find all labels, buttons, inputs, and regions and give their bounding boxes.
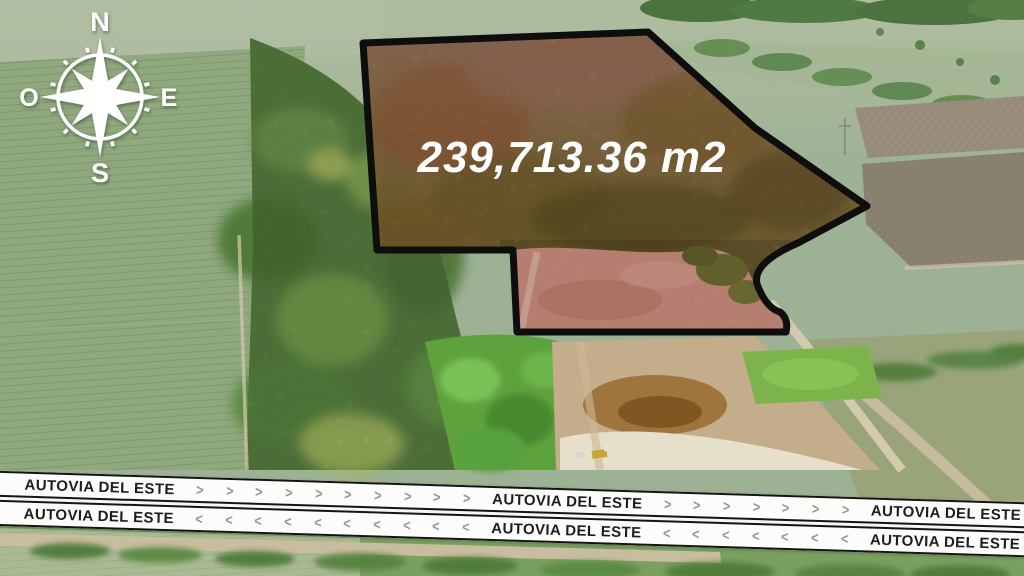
- direction-chevron: >: [841, 501, 849, 518]
- direction-chevron: <: [284, 513, 292, 530]
- road-name-label: AUTOVIA DEL ESTE: [870, 531, 1021, 553]
- compass-north-label: N: [90, 7, 110, 37]
- aerial-land-listing: 239,713.36 m2: [0, 0, 1024, 576]
- direction-chevron: <: [225, 511, 233, 528]
- direction-chevron: >: [752, 498, 760, 515]
- direction-chevron: <: [314, 514, 322, 531]
- direction-chevron: >: [196, 481, 204, 498]
- direction-chevron: >: [433, 489, 441, 506]
- direction-chevron: >: [693, 497, 701, 514]
- direction-chevron: <: [195, 510, 203, 527]
- direction-chevron: <: [662, 525, 670, 542]
- road-name-label: AUTOVIA DEL ESTE: [871, 502, 1022, 524]
- green-patch: [742, 346, 882, 404]
- compass-west-label: O: [19, 84, 38, 112]
- direction-chevron: <: [752, 527, 760, 544]
- direction-chevron: >: [723, 498, 731, 515]
- westbound-arrows: <<<<<<<: [641, 524, 870, 548]
- direction-chevron: >: [663, 496, 671, 513]
- direction-chevron: >: [225, 482, 233, 499]
- direction-chevron: <: [254, 512, 262, 529]
- eastbound-arrows: >>>>>>>: [642, 495, 871, 519]
- westbound-arrows: <<<<<<<<<<: [174, 510, 492, 537]
- direction-chevron: <: [811, 529, 819, 546]
- direction-chevron: >: [374, 487, 382, 504]
- compass-east-label: E: [161, 84, 178, 112]
- direction-chevron: <: [462, 519, 470, 536]
- road-name-label: AUTOVIA DEL ESTE: [492, 490, 643, 512]
- road-name-label: AUTOVIA DEL ESTE: [24, 476, 175, 498]
- direction-chevron: <: [692, 526, 700, 543]
- direction-chevron: >: [782, 499, 790, 516]
- direction-chevron: >: [314, 485, 322, 502]
- direction-chevron: <: [841, 530, 849, 547]
- road-name-label: AUTOVIA DEL ESTE: [491, 519, 642, 541]
- direction-chevron: <: [781, 528, 789, 545]
- direction-chevron: >: [403, 488, 411, 505]
- direction-chevron: <: [343, 515, 351, 532]
- parcel-area-label: 239,713.36 m2: [416, 133, 726, 182]
- direction-chevron: <: [403, 517, 411, 534]
- direction-chevron: <: [432, 518, 440, 535]
- direction-chevron: >: [285, 484, 293, 501]
- direction-chevron: >: [344, 486, 352, 503]
- road-name-label: AUTOVIA DEL ESTE: [23, 505, 174, 527]
- compass-south-label: S: [91, 158, 109, 188]
- direction-chevron: >: [812, 500, 820, 517]
- direction-chevron: >: [463, 490, 471, 507]
- direction-chevron: <: [722, 527, 730, 544]
- direction-chevron: <: [373, 516, 381, 533]
- direction-chevron: >: [255, 483, 263, 500]
